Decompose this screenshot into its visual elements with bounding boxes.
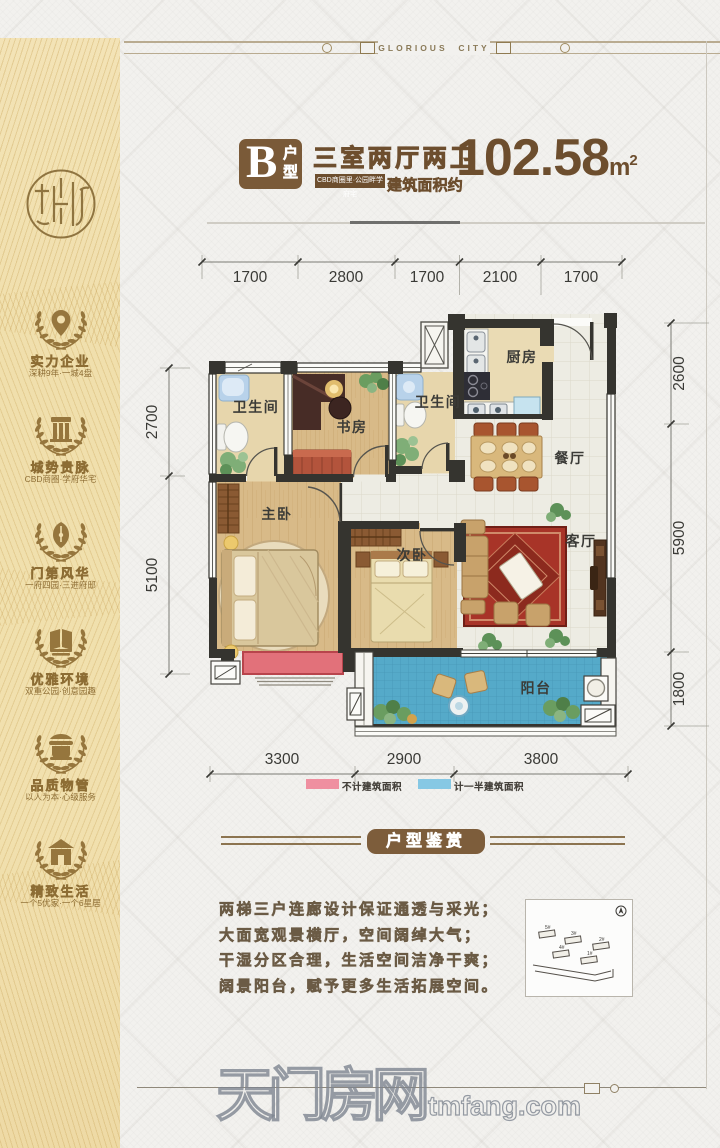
- svg-text:客厅: 客厅: [565, 533, 597, 549]
- svg-text:2100: 2100: [483, 269, 518, 286]
- svg-text:2800: 2800: [329, 269, 364, 286]
- svg-text:2700: 2700: [144, 404, 161, 439]
- svg-text:5900: 5900: [671, 520, 688, 555]
- svg-text:3#: 3#: [571, 931, 577, 937]
- svg-text:4#: 4#: [559, 945, 565, 951]
- svg-text:书房: 书房: [337, 419, 368, 435]
- svg-text:餐厅: 餐厅: [554, 450, 586, 466]
- svg-text:3800: 3800: [524, 751, 559, 768]
- svg-text:1700: 1700: [410, 269, 445, 286]
- svg-text:5#: 5#: [545, 925, 551, 931]
- svg-text:3300: 3300: [265, 751, 300, 768]
- svg-text:卫生间: 卫生间: [233, 399, 280, 415]
- svg-text:2#: 2#: [599, 937, 605, 943]
- svg-text:2600: 2600: [671, 356, 688, 391]
- svg-text:5100: 5100: [144, 557, 161, 592]
- svg-text:阳台: 阳台: [521, 680, 552, 696]
- svg-text:2900: 2900: [387, 751, 422, 768]
- svg-text:1800: 1800: [671, 671, 688, 706]
- svg-text:主卧: 主卧: [262, 506, 293, 522]
- svg-text:次卧: 次卧: [397, 547, 428, 563]
- svg-text:1#: 1#: [587, 951, 593, 957]
- svg-text:卫生间: 卫生间: [415, 394, 462, 410]
- svg-text:1700: 1700: [233, 269, 268, 286]
- svg-text:1700: 1700: [564, 269, 599, 286]
- svg-text:厨房: 厨房: [507, 349, 538, 365]
